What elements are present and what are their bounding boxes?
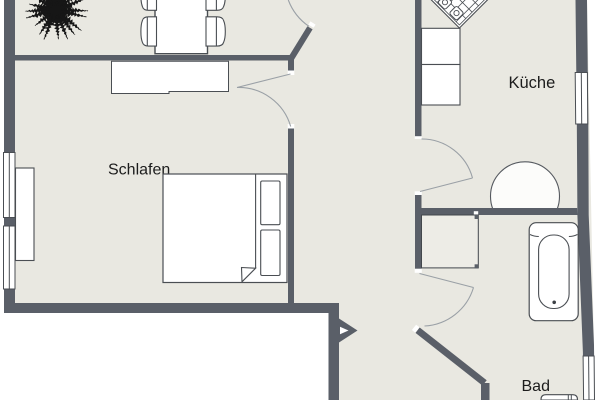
svg-text:Bad: Bad: [522, 378, 550, 395]
svg-text:Schlafen: Schlafen: [108, 162, 170, 179]
svg-text:Küche: Küche: [509, 74, 556, 92]
